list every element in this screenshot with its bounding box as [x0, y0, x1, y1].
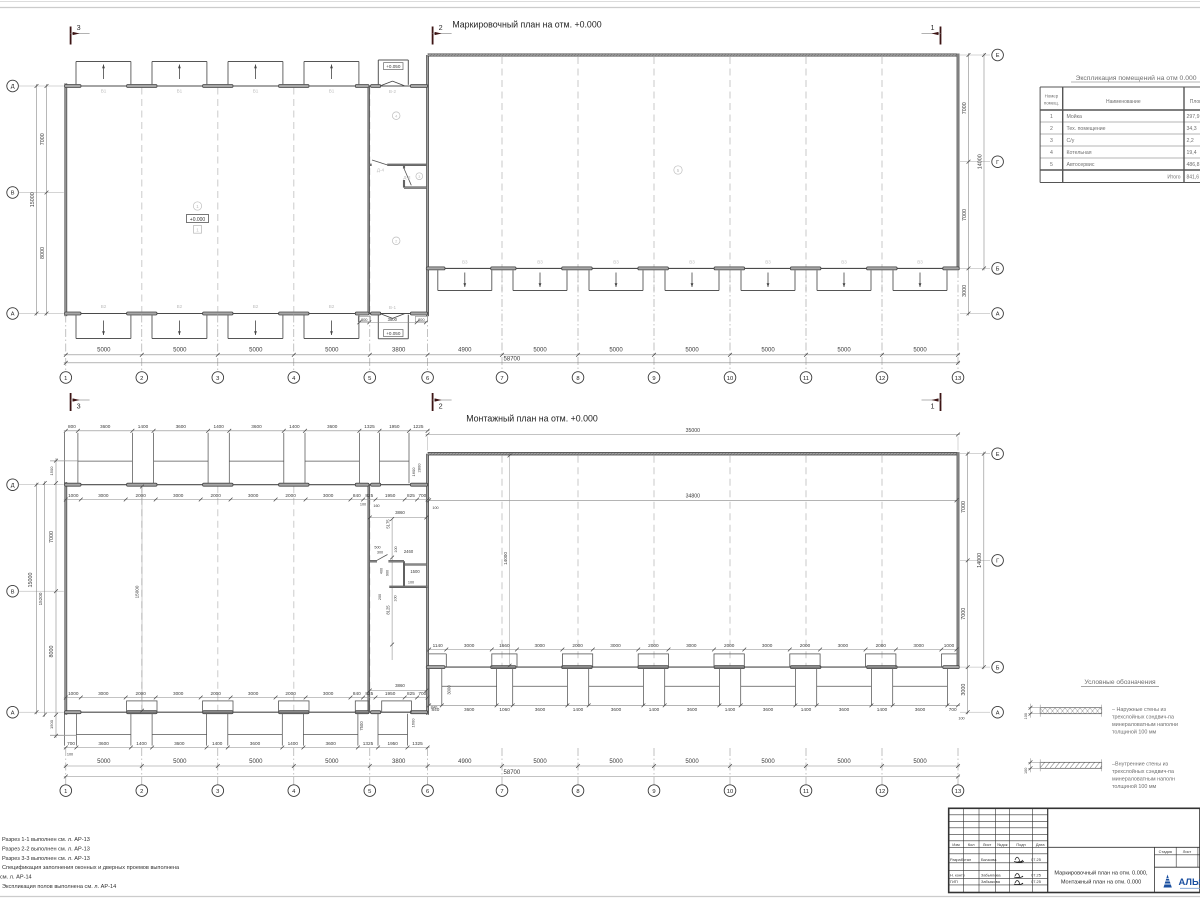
svg-text:1400: 1400: [289, 424, 300, 429]
svg-text:14000: 14000: [503, 552, 508, 565]
svg-text:5000: 5000: [97, 348, 111, 354]
svg-text:В-1: В-1: [389, 305, 397, 310]
svg-text:3600: 3600: [100, 424, 111, 429]
svg-text:+0.050: +0.050: [386, 331, 401, 336]
svg-text:15200: 15200: [38, 592, 43, 605]
svg-text:2000: 2000: [648, 643, 659, 648]
svg-text:Тех. помещение: Тех. помещение: [1067, 126, 1106, 132]
svg-text:13: 13: [955, 789, 961, 795]
svg-text:2: 2: [140, 376, 143, 382]
svg-text:5000: 5000: [837, 348, 851, 354]
svg-text:толщиной 100 мм: толщиной 100 мм: [1112, 783, 1157, 790]
svg-text:3600: 3600: [250, 741, 261, 746]
svg-text:3000: 3000: [323, 493, 334, 498]
svg-text:Спецификация заполнения оконны: Спецификация заполнения оконных и дверны…: [2, 865, 180, 871]
svg-text:Стадия: Стадия: [1159, 849, 1172, 854]
svg-text:07.25: 07.25: [1031, 879, 1041, 884]
svg-text:297,9: 297,9: [1187, 114, 1200, 120]
svg-text:3000: 3000: [913, 643, 924, 648]
svg-text:Разработал: Разработал: [950, 857, 971, 862]
svg-text:1325: 1325: [363, 741, 374, 746]
svg-text:1325: 1325: [364, 424, 375, 429]
svg-text:3: 3: [77, 23, 81, 32]
svg-text:3000: 3000: [248, 691, 259, 696]
svg-text:500: 500: [374, 546, 380, 550]
svg-text:1600: 1600: [411, 467, 416, 477]
svg-text:3600: 3600: [174, 741, 185, 746]
svg-text:1: 1: [931, 402, 935, 411]
svg-text:7000: 7000: [962, 209, 968, 221]
svg-text:В3: В3: [917, 260, 923, 265]
svg-text:1000: 1000: [68, 493, 79, 498]
svg-text:700: 700: [949, 707, 957, 712]
svg-text:+0.050: +0.050: [386, 64, 401, 69]
svg-text:12: 12: [879, 376, 885, 382]
svg-text:1400: 1400: [212, 741, 223, 746]
svg-text:АЛЬЯН: АЛЬЯН: [1179, 876, 1200, 887]
svg-text:19,4: 19,4: [1187, 150, 1197, 156]
svg-text:2000: 2000: [210, 691, 221, 696]
svg-text:1400: 1400: [877, 707, 888, 712]
svg-text:В: В: [11, 589, 15, 595]
svg-text:1000: 1000: [68, 691, 79, 696]
svg-text:8: 8: [576, 376, 579, 382]
svg-text:Д: Д: [11, 483, 15, 489]
svg-text:5000: 5000: [249, 759, 263, 765]
svg-text:160: 160: [373, 504, 379, 508]
svg-text:1400: 1400: [649, 707, 660, 712]
svg-text:минераловатным наполни: минераловатным наполни: [1112, 722, 1178, 728]
svg-text:8125: 8125: [385, 605, 390, 615]
svg-text:5: 5: [1050, 162, 1053, 168]
svg-text:Монтажный план на отм. +0.000: Монтажный план на отм. +0.000: [466, 414, 598, 424]
svg-text:3000: 3000: [464, 643, 475, 648]
svg-text:3600: 3600: [176, 424, 187, 429]
svg-text:см. л. АР-14: см. л. АР-14: [0, 875, 32, 881]
svg-text:5000: 5000: [685, 759, 699, 765]
svg-text:Номер: Номер: [1045, 94, 1059, 99]
svg-text:3000: 3000: [686, 643, 697, 648]
svg-text:3600: 3600: [763, 707, 774, 712]
svg-text:2: 2: [439, 402, 443, 411]
svg-text:2000: 2000: [210, 493, 221, 498]
svg-text:07.25: 07.25: [1031, 857, 1041, 862]
svg-text:400: 400: [380, 568, 384, 574]
svg-text:3800: 3800: [392, 759, 406, 765]
svg-text:3600: 3600: [915, 707, 926, 712]
svg-text:В3: В3: [765, 260, 771, 265]
svg-text:В3: В3: [841, 260, 847, 265]
svg-text:2000: 2000: [285, 493, 296, 498]
svg-text:2: 2: [140, 789, 143, 795]
svg-text:–Внутренние стены из: –Внутренние стены из: [1112, 762, 1169, 768]
svg-text:700: 700: [67, 741, 75, 746]
svg-text:Б: Б: [996, 665, 1000, 671]
svg-text:1140: 1140: [433, 643, 443, 648]
svg-text:Д-3: Д-3: [403, 175, 411, 180]
svg-text:2: 2: [1050, 126, 1053, 132]
svg-text:3000: 3000: [838, 643, 849, 648]
svg-text:1400: 1400: [288, 741, 299, 746]
svg-text:Экспликация помещений на отм 0: Экспликация помещений на отм 0.000: [1075, 74, 1196, 82]
svg-text:5000: 5000: [837, 759, 851, 765]
svg-text:1500: 1500: [49, 466, 54, 476]
svg-text:1500: 1500: [410, 569, 420, 574]
svg-text:1400: 1400: [573, 707, 584, 712]
svg-text:840: 840: [353, 691, 361, 696]
svg-text:1400: 1400: [213, 424, 224, 429]
svg-text:8: 8: [576, 789, 579, 795]
svg-text:трехслойных сэндвич-па: трехслойных сэндвич-па: [1112, 714, 1174, 721]
svg-text:Дата: Дата: [1036, 842, 1045, 847]
svg-text:В2: В2: [253, 304, 259, 309]
svg-text:5000: 5000: [533, 759, 547, 765]
svg-text:1950: 1950: [385, 691, 396, 696]
svg-text:С/у: С/у: [1067, 138, 1075, 144]
svg-text:Забьялова: Забьялова: [981, 873, 1001, 878]
svg-text:486,8: 486,8: [1187, 162, 1200, 168]
svg-text:3: 3: [77, 402, 81, 411]
svg-text:Д: Д: [11, 84, 15, 90]
svg-text:3: 3: [216, 789, 219, 795]
svg-text:А: А: [996, 710, 1000, 716]
svg-text:2000: 2000: [135, 691, 146, 696]
svg-text:15000: 15000: [28, 573, 34, 588]
svg-text:100: 100: [394, 546, 398, 552]
svg-text:3800: 3800: [388, 317, 398, 322]
svg-text:100: 100: [394, 595, 398, 601]
svg-text:1600: 1600: [411, 718, 416, 728]
svg-text:6: 6: [426, 376, 429, 382]
svg-text:12: 12: [879, 789, 885, 795]
svg-text:Разрез 3-3 выполнен см. л. АР-: Разрез 3-3 выполнен см. л. АР-13: [2, 856, 90, 862]
svg-text:100: 100: [67, 753, 73, 757]
svg-text:3600: 3600: [464, 707, 475, 712]
svg-text:Маркировочный план на отм. 0.0: Маркировочный план на отм. 0.000,: [1054, 870, 1148, 877]
svg-text:Изм: Изм: [952, 842, 960, 847]
svg-text:В2: В2: [101, 304, 107, 309]
svg-text:3000: 3000: [534, 643, 545, 648]
svg-text:34,3: 34,3: [1187, 126, 1197, 132]
svg-text:3: 3: [1050, 138, 1053, 144]
svg-text:В3: В3: [689, 260, 695, 265]
svg-text:5000: 5000: [533, 348, 547, 354]
svg-text:100: 100: [360, 503, 366, 507]
svg-text:Д-4: Д-4: [377, 168, 385, 173]
svg-text:2: 2: [439, 23, 443, 32]
svg-text:3860: 3860: [395, 510, 405, 515]
svg-text:В2: В2: [329, 304, 335, 309]
svg-text:№док: №док: [997, 842, 1008, 847]
svg-text:Итого: Итого: [1167, 175, 1180, 181]
svg-text:1400: 1400: [138, 424, 149, 429]
svg-text:4900: 4900: [458, 348, 472, 354]
svg-text:5175: 5175: [385, 519, 390, 529]
svg-text:2000: 2000: [135, 493, 146, 498]
svg-text:А: А: [11, 312, 15, 318]
svg-text:58700: 58700: [504, 356, 521, 362]
svg-text:5: 5: [368, 789, 371, 795]
svg-text:Забьякова: Забьякова: [981, 879, 1001, 884]
svg-text:34800: 34800: [686, 494, 701, 500]
svg-text:800: 800: [418, 317, 425, 322]
svg-text:толщиной 100 мм: толщиной 100 мм: [1112, 729, 1157, 736]
svg-text:3600: 3600: [327, 424, 338, 429]
svg-text:трехслойных сэндвич-па: трехслойных сэндвич-па: [1112, 768, 1174, 775]
svg-text:3800: 3800: [392, 348, 406, 354]
svg-text:100: 100: [432, 506, 438, 510]
svg-text:А: А: [11, 710, 15, 716]
svg-text:2000: 2000: [876, 643, 887, 648]
svg-text:5: 5: [368, 376, 371, 382]
svg-text:800: 800: [68, 424, 76, 429]
svg-text:Е: Е: [996, 53, 1000, 59]
svg-text:8000: 8000: [40, 247, 46, 259]
svg-text:5000: 5000: [249, 348, 263, 354]
svg-text:Лист: Лист: [983, 842, 992, 847]
svg-text:3000: 3000: [762, 643, 773, 648]
svg-text:Экспликация полов выполнена см: Экспликация полов выполнена см. л. АР-14: [2, 884, 116, 890]
svg-text:1325: 1325: [412, 741, 423, 746]
svg-text:100: 100: [408, 581, 414, 585]
svg-text:2800: 2800: [417, 463, 422, 473]
svg-text:11: 11: [803, 789, 809, 795]
svg-text:4: 4: [1050, 150, 1053, 156]
svg-text:3: 3: [216, 376, 219, 382]
svg-text:3000: 3000: [447, 685, 452, 695]
svg-text:840: 840: [353, 493, 361, 498]
svg-text:100: 100: [958, 717, 964, 721]
svg-text:5000: 5000: [685, 348, 699, 354]
svg-text:3000: 3000: [98, 493, 109, 498]
svg-text:58700: 58700: [504, 770, 521, 776]
svg-text:3600: 3600: [98, 741, 109, 746]
svg-text:Н. контр: Н. контр: [950, 873, 965, 878]
svg-text:Котельная: Котельная: [1067, 150, 1092, 156]
svg-text:Разрез 2-2 выполнен см. л. АР-: Разрез 2-2 выполнен см. л. АР-13: [2, 847, 90, 853]
svg-text:Подп: Подп: [1016, 842, 1025, 847]
svg-text:8000: 8000: [49, 646, 55, 658]
svg-text:Наименование: Наименование: [1106, 99, 1141, 105]
svg-text:07.25: 07.25: [1031, 873, 1041, 878]
svg-text:3600: 3600: [251, 424, 262, 429]
svg-text:Кол: Кол: [968, 842, 975, 847]
svg-text:В1: В1: [101, 89, 107, 94]
svg-text:1225: 1225: [413, 424, 424, 429]
svg-text:В2: В2: [177, 304, 183, 309]
svg-text:– Наружные стены из: – Наружные стены из: [1112, 707, 1166, 713]
svg-text:помещ.: помещ.: [1044, 101, 1059, 106]
svg-text:825: 825: [407, 691, 415, 696]
svg-text:3600: 3600: [325, 741, 336, 746]
svg-text:900: 900: [386, 570, 390, 576]
svg-text:5000: 5000: [173, 348, 187, 354]
svg-text:841,6: 841,6: [1187, 175, 1200, 181]
svg-text:7000: 7000: [962, 102, 968, 114]
svg-text:10: 10: [727, 789, 733, 795]
svg-text:1660: 1660: [499, 643, 510, 648]
svg-text:1500: 1500: [49, 719, 54, 729]
svg-text:Разрез 1-1 выполнен см. л. АР-: Разрез 1-1 выполнен см. л. АР-13: [2, 837, 90, 843]
svg-text:2460: 2460: [404, 549, 414, 554]
svg-text:840: 840: [431, 705, 438, 710]
svg-text:5000: 5000: [609, 759, 623, 765]
svg-text:3600: 3600: [611, 707, 622, 712]
svg-text:14000: 14000: [977, 553, 983, 568]
svg-text:Маркировочный план на отм. +0.: Маркировочный план на отм. +0.000: [452, 20, 601, 30]
svg-text:100: 100: [1024, 768, 1028, 774]
svg-text:7: 7: [500, 789, 503, 795]
svg-text:5000: 5000: [325, 348, 339, 354]
svg-text:Мойка: Мойка: [1067, 113, 1083, 120]
svg-text:5000: 5000: [609, 348, 623, 354]
svg-text:Г: Г: [996, 559, 999, 565]
svg-text:В3: В3: [613, 260, 619, 265]
svg-text:1: 1: [64, 789, 67, 795]
svg-text:5000: 5000: [173, 759, 187, 765]
svg-text:6: 6: [426, 789, 429, 795]
svg-text:Автосервис: Автосервис: [1067, 162, 1095, 168]
svg-text:15000: 15000: [135, 585, 140, 598]
svg-text:1950: 1950: [389, 424, 400, 429]
svg-text:1: 1: [931, 23, 935, 32]
svg-text:300: 300: [377, 551, 383, 555]
svg-text:200: 200: [378, 594, 382, 600]
svg-text:7500: 7500: [359, 721, 364, 731]
svg-text:Бычкова: Бычкова: [981, 857, 997, 862]
svg-text:3: 3: [418, 175, 420, 179]
svg-text:1950: 1950: [385, 493, 396, 498]
svg-text:1: 1: [64, 376, 67, 382]
svg-text:14000: 14000: [977, 154, 983, 169]
svg-text:7000: 7000: [961, 501, 967, 513]
svg-text:2000: 2000: [572, 643, 583, 648]
svg-text:825: 825: [407, 493, 415, 498]
svg-text:1400: 1400: [725, 707, 736, 712]
svg-text:Площ: Площ: [1190, 99, 1200, 105]
svg-text:А: А: [996, 312, 1000, 318]
svg-text:2000: 2000: [285, 691, 296, 696]
svg-text:5000: 5000: [97, 759, 111, 765]
svg-text:2,2: 2,2: [1187, 138, 1194, 144]
svg-text:5000: 5000: [325, 759, 339, 765]
svg-text:3000: 3000: [323, 691, 334, 696]
svg-text:700: 700: [418, 493, 426, 498]
svg-text:В1: В1: [329, 89, 335, 94]
svg-text:1400: 1400: [136, 741, 147, 746]
svg-text:В: В: [11, 191, 15, 197]
svg-text:1400: 1400: [801, 707, 812, 712]
svg-text:7000: 7000: [49, 531, 55, 543]
svg-text:В1: В1: [253, 89, 259, 94]
svg-text:7000: 7000: [40, 133, 46, 145]
svg-text:11: 11: [803, 376, 809, 382]
svg-text:Лист: Лист: [1183, 849, 1192, 854]
svg-text:10: 10: [727, 376, 733, 382]
svg-text:800: 800: [361, 317, 368, 322]
svg-text:В-2: В-2: [389, 89, 397, 94]
svg-text:5000: 5000: [761, 759, 775, 765]
svg-text:1950: 1950: [387, 741, 398, 746]
svg-text:В1: В1: [177, 89, 183, 94]
svg-text:9: 9: [652, 789, 655, 795]
svg-text:3000: 3000: [173, 493, 184, 498]
svg-text:В3: В3: [462, 260, 468, 265]
svg-text:1060: 1060: [499, 707, 510, 712]
svg-text:3000: 3000: [961, 684, 967, 696]
svg-text:15000: 15000: [30, 192, 36, 207]
svg-text:5000: 5000: [913, 348, 927, 354]
svg-text:минераловатным наполн: минераловатным наполн: [1112, 777, 1175, 783]
svg-text:Монтажный план на отм. 0.000: Монтажный план на отм. 0.000: [1061, 879, 1141, 886]
svg-text:3600: 3600: [535, 707, 546, 712]
svg-text:3000: 3000: [98, 691, 109, 696]
svg-text:2000: 2000: [724, 643, 735, 648]
svg-text:2000: 2000: [800, 643, 811, 648]
svg-text:825: 825: [365, 493, 373, 498]
svg-text:9: 9: [652, 376, 655, 382]
svg-text:Б: Б: [996, 267, 1000, 273]
svg-text:Г: Г: [996, 160, 999, 166]
svg-text:7: 7: [500, 376, 503, 382]
svg-text:4900: 4900: [458, 759, 472, 765]
svg-text:5000: 5000: [761, 348, 775, 354]
svg-text:5000: 5000: [913, 759, 927, 765]
svg-text:3000: 3000: [610, 643, 621, 648]
svg-text:3000: 3000: [248, 493, 259, 498]
svg-text:1: 1: [1050, 114, 1053, 120]
svg-text:35000: 35000: [686, 428, 701, 434]
svg-text:ГИП: ГИП: [950, 879, 958, 884]
svg-text:Условные обозначения: Условные обозначения: [1084, 678, 1156, 686]
svg-text:1000: 1000: [944, 643, 955, 648]
svg-text:13: 13: [955, 376, 961, 382]
svg-text:3860: 3860: [395, 683, 405, 688]
svg-text:3000: 3000: [962, 285, 968, 297]
svg-text:3000: 3000: [173, 691, 184, 696]
svg-text:3600: 3600: [687, 707, 698, 712]
svg-text:Е: Е: [996, 452, 1000, 458]
svg-text:+0.000: +0.000: [190, 217, 206, 223]
svg-text:100: 100: [1024, 713, 1028, 719]
svg-text:7000: 7000: [961, 608, 967, 620]
svg-text:825: 825: [365, 691, 373, 696]
svg-text:В3: В3: [537, 260, 543, 265]
svg-text:3600: 3600: [839, 707, 850, 712]
